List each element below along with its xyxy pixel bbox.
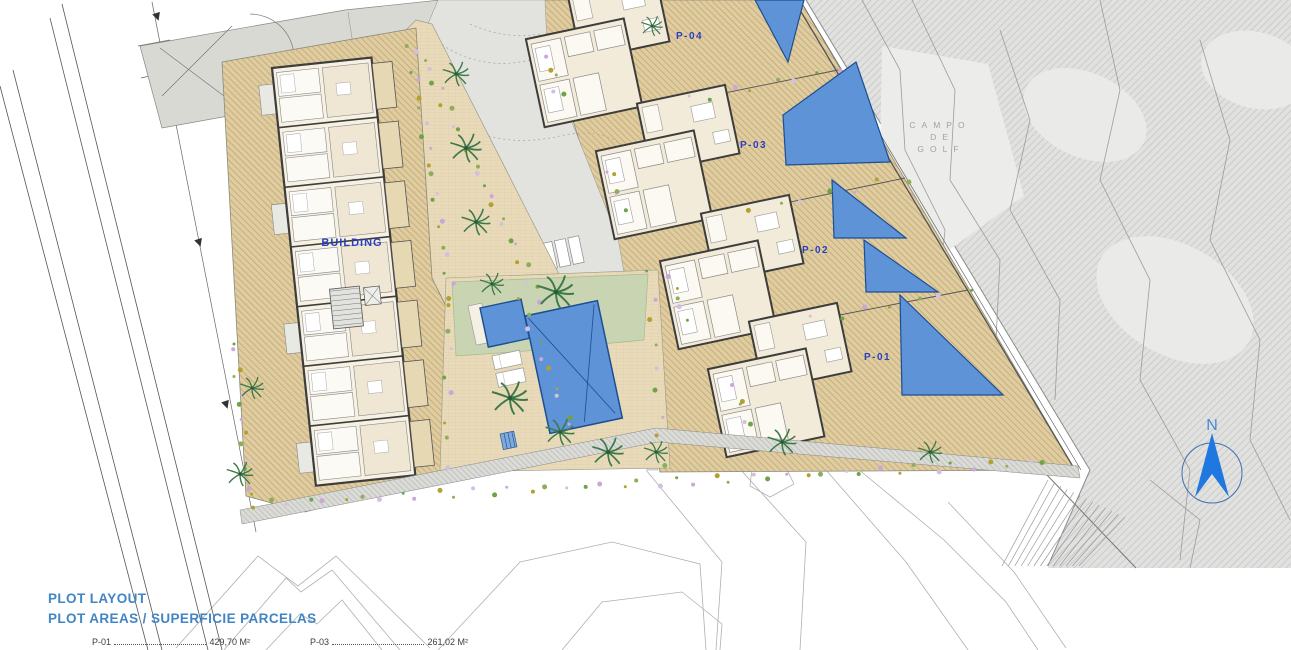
golf-label-line2: DE <box>930 132 954 142</box>
plot-label-p04: P-04 <box>676 31 703 42</box>
legend-entry-p01: P-01 429,70 M² <box>92 637 250 647</box>
legend-entry-p03: P-03 261,02 M² <box>310 637 468 647</box>
building-label: BUILDING <box>321 237 382 249</box>
pool-steps <box>500 431 517 450</box>
legend-subtitle: PLOT AREAS / SUPERFICIE PARCELAS <box>48 609 468 629</box>
north-label: N <box>1206 417 1218 434</box>
legend-entry-area: 429,70 M² <box>209 637 250 647</box>
golf-label-line1: CAMPO <box>909 120 970 130</box>
dotted-leader <box>114 644 206 645</box>
site-plan-drawing: CAMPO DE GOLF <box>0 0 1291 650</box>
dotted-leader <box>332 644 424 645</box>
plot-label-p01: P-01 <box>864 352 891 363</box>
legend: PLOT LAYOUT PLOT AREAS / SUPERFICIE PARC… <box>48 589 468 647</box>
legend-title: PLOT LAYOUT <box>48 589 468 609</box>
legend-entry-area: 261,02 M² <box>427 637 468 647</box>
legend-entry-plot: P-01 <box>92 637 111 647</box>
plot-label-p02: P-02 <box>802 245 829 256</box>
plot-label-p03: P-03 <box>740 140 767 151</box>
legend-entry-plot: P-03 <box>310 637 329 647</box>
site-plan-page: CAMPO DE GOLF <box>0 0 1291 650</box>
golf-label-line3: GOLF <box>917 144 964 154</box>
small-pool <box>480 299 529 347</box>
